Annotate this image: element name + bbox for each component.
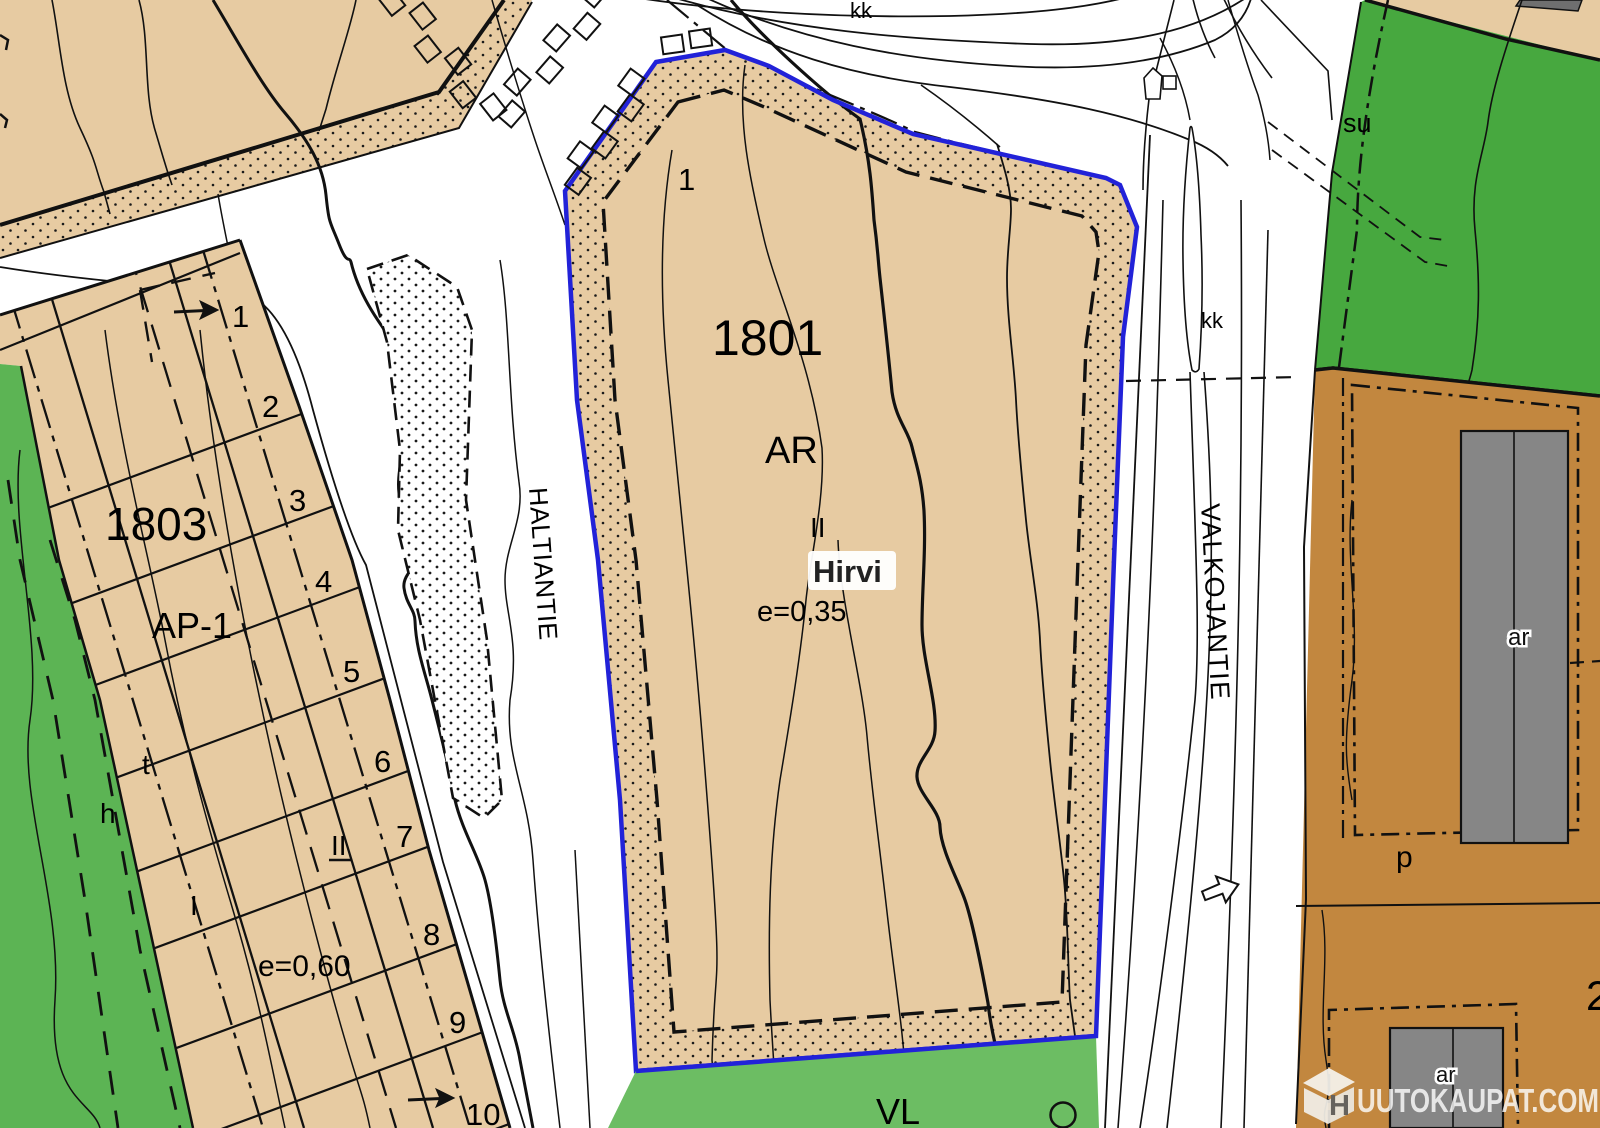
svg-text:2: 2	[262, 389, 279, 424]
svg-text:I: I	[190, 890, 198, 921]
svg-text:1803: 1803	[105, 498, 207, 550]
svg-text:8: 8	[423, 917, 440, 952]
svg-text:p: p	[1396, 841, 1413, 874]
svg-text:ar: ar	[1508, 624, 1529, 651]
svg-text:II: II	[331, 830, 347, 861]
svg-text:VL: VL	[876, 1091, 920, 1128]
svg-text:UUTOKAUPAT.COM: UUTOKAUPAT.COM	[1357, 1082, 1599, 1119]
svg-text:e=0,35: e=0,35	[757, 596, 847, 628]
svg-text:su: su	[1343, 108, 1372, 138]
svg-text:9: 9	[449, 1005, 466, 1040]
svg-text:3: 3	[289, 483, 306, 518]
svg-text:10: 10	[466, 1097, 500, 1128]
svg-text:7: 7	[396, 819, 413, 854]
svg-text:4: 4	[315, 564, 332, 599]
svg-text:2: 2	[1586, 972, 1600, 1019]
svg-text:t: t	[142, 749, 150, 780]
svg-text:AR: AR	[765, 430, 818, 472]
svg-text:H: H	[1329, 1090, 1350, 1122]
svg-text:kk: kk	[850, 0, 873, 23]
svg-text:1801: 1801	[712, 310, 823, 366]
svg-text:h: h	[100, 798, 116, 829]
svg-text:Hirvi: Hirvi	[813, 554, 882, 589]
svg-text:6: 6	[374, 744, 391, 779]
svg-text:AP-1: AP-1	[152, 605, 232, 646]
svg-text:1: 1	[678, 162, 695, 197]
svg-text:1: 1	[232, 299, 249, 334]
svg-text:e=0,60: e=0,60	[258, 950, 351, 983]
svg-text:kk: kk	[1201, 308, 1224, 333]
svg-text:II: II	[810, 512, 826, 543]
svg-text:5: 5	[343, 654, 360, 689]
